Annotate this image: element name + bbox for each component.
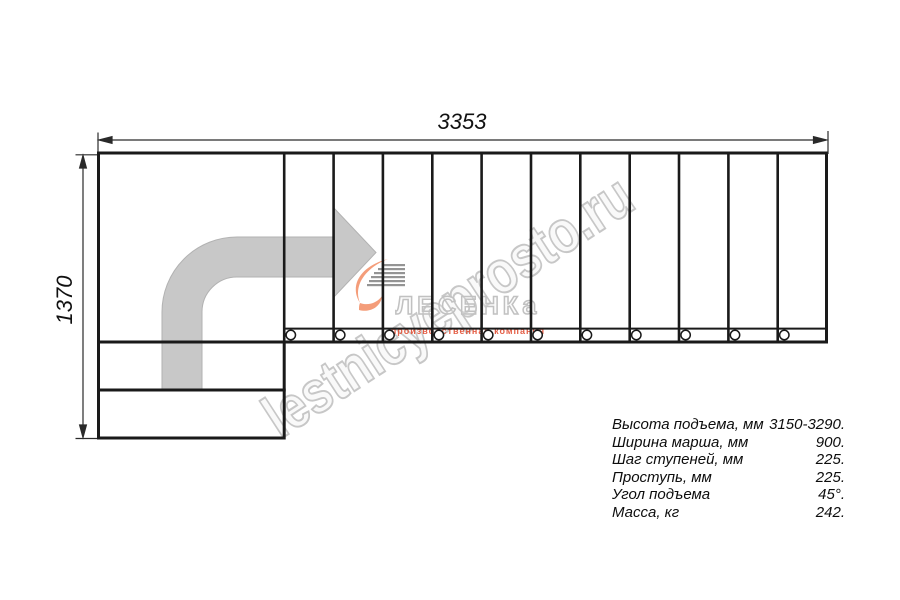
spec-row: Высота подъема, мм 3150-3290. — [612, 416, 845, 434]
spec-table: Высота подъема, мм 3150-3290. Ширина мар… — [612, 416, 845, 522]
spec-value: 900. — [816, 434, 845, 452]
spec-row: Масса, кг 242. — [612, 504, 845, 522]
spec-row: Угол подъема 45°. — [612, 486, 845, 504]
spec-label: Проступь, мм — [612, 469, 712, 487]
dimension-width-label: 3353 — [392, 109, 532, 135]
spec-label: Ширина марша, мм — [612, 434, 748, 452]
direction-arrow — [162, 207, 376, 389]
bolt-circles — [286, 330, 789, 339]
dimension-height-label: 1370 — [39, 274, 91, 326]
stair-outline — [99, 153, 827, 438]
spec-label: Угол подъема — [612, 486, 710, 504]
spec-label: Масса, кг — [612, 504, 679, 522]
spec-row: Проступь, мм 225. — [612, 469, 845, 487]
spec-value: 45°. — [818, 486, 845, 504]
spec-label: Шаг ступеней, мм — [612, 451, 743, 469]
spec-value: 225. — [816, 469, 845, 487]
stair-drawing-page: lestnicyeprosto.ru ЛЕСЕНКа производствен… — [0, 0, 900, 600]
spec-value: 3150-3290. — [769, 416, 845, 434]
spec-value: 225. — [816, 451, 845, 469]
spec-row: Шаг ступеней, мм 225. — [612, 451, 845, 469]
spec-row: Ширина марша, мм 900. — [612, 434, 845, 452]
spec-label: Высота подъема, мм — [612, 416, 764, 434]
spec-value: 242. — [816, 504, 845, 522]
